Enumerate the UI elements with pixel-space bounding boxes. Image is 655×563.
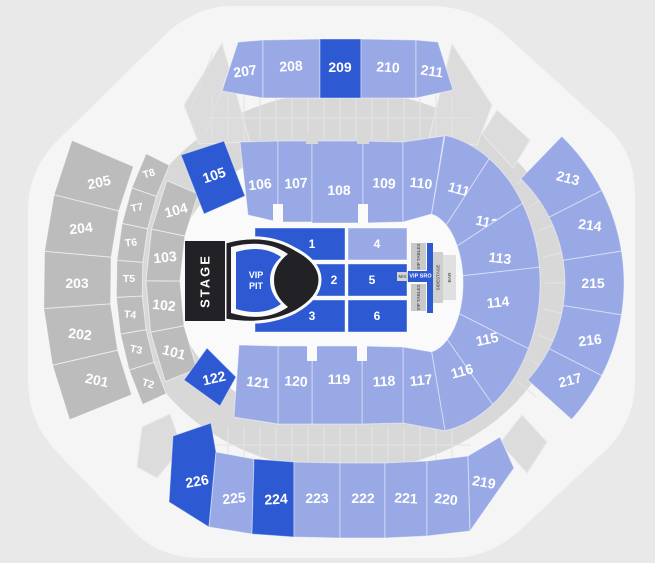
vip-tables-top-box[interactable] bbox=[411, 243, 426, 270]
section-225[interactable]: 225 bbox=[209, 452, 254, 534]
section-209[interactable]: 209 bbox=[320, 39, 361, 98]
floor-section-4[interactable]: 4 bbox=[348, 228, 407, 260]
section-210[interactable]: 210 bbox=[361, 39, 416, 98]
section-215-shape[interactable] bbox=[563, 251, 624, 315]
section-221[interactable]: 221 bbox=[385, 461, 427, 538]
section-223[interactable]: 223 bbox=[294, 462, 340, 538]
section-103-shape bbox=[146, 229, 185, 281]
section-t4-shape bbox=[116, 296, 146, 334]
section-119-shape[interactable] bbox=[312, 346, 362, 424]
section-224[interactable]: 224 bbox=[252, 459, 294, 537]
section-group-top-200: 207 208 209 210 211 bbox=[222, 39, 453, 98]
vip-tables-bottom[interactable]: VIP TABLES bbox=[411, 284, 426, 311]
aisle-notch bbox=[357, 345, 367, 361]
section-108[interactable]: 108 bbox=[312, 141, 363, 223]
section-119[interactable]: 119 bbox=[312, 346, 362, 424]
section-107-shape[interactable] bbox=[278, 141, 312, 222]
section-222[interactable]: 222 bbox=[340, 463, 385, 538]
aisle-notch bbox=[273, 204, 283, 223]
vip-tables-top[interactable]: VIP TABLES bbox=[411, 243, 426, 270]
section-t5-shape bbox=[116, 260, 143, 297]
section-208-shape[interactable] bbox=[263, 39, 320, 98]
section-t4: T4 bbox=[116, 296, 146, 334]
floor-section-6[interactable]: 6 bbox=[348, 300, 407, 332]
section-102-shape bbox=[146, 281, 184, 332]
aisle-notch bbox=[358, 204, 368, 223]
mix-box bbox=[397, 272, 408, 281]
section-223-shape[interactable] bbox=[294, 462, 340, 538]
section-209-shape[interactable] bbox=[320, 39, 361, 98]
section-208[interactable]: 208 bbox=[263, 39, 320, 98]
section-222-shape[interactable] bbox=[340, 463, 385, 538]
section-103: 103 bbox=[146, 229, 185, 281]
section-121[interactable]: 121 bbox=[234, 345, 278, 424]
section-221-shape[interactable] bbox=[385, 461, 427, 538]
section-210-shape[interactable] bbox=[361, 39, 416, 98]
section-107[interactable]: 107 bbox=[278, 141, 312, 222]
stage-group: VIP PIT STAGE bbox=[185, 238, 320, 322]
vomitory-notch bbox=[306, 133, 318, 144]
section-203-shape bbox=[44, 251, 112, 308]
vip-sro-box[interactable] bbox=[408, 271, 433, 282]
aisle-notch bbox=[307, 345, 317, 361]
section-118-shape[interactable] bbox=[362, 346, 403, 424]
vip-sro[interactable]: VIP SRO bbox=[408, 271, 433, 282]
section-121-shape[interactable] bbox=[234, 345, 278, 424]
bar-box bbox=[443, 255, 456, 300]
section-224-shape[interactable] bbox=[252, 459, 294, 537]
stage-shape bbox=[185, 241, 225, 321]
section-120[interactable]: 120 bbox=[278, 346, 312, 424]
section-108-shape[interactable] bbox=[312, 141, 363, 223]
section-220-shape[interactable] bbox=[427, 456, 470, 536]
vomitory-notch bbox=[357, 133, 369, 144]
section-118[interactable]: 118 bbox=[362, 346, 403, 424]
section-t6-shape bbox=[117, 223, 148, 262]
section-109[interactable]: 109 bbox=[363, 141, 403, 223]
floor-section-4-shape[interactable] bbox=[348, 228, 407, 260]
section-215[interactable]: 215 bbox=[563, 251, 624, 315]
section-203: 203 bbox=[44, 251, 112, 308]
vip-tables-bottom-box[interactable] bbox=[411, 284, 426, 311]
section-120-shape[interactable] bbox=[278, 346, 312, 424]
sidestage-box bbox=[433, 252, 443, 303]
section-109-shape[interactable] bbox=[363, 141, 403, 223]
section-225-shape[interactable] bbox=[209, 452, 254, 534]
section-t5: T5 bbox=[116, 260, 143, 297]
section-t6: T6 bbox=[117, 223, 148, 262]
seat-map: 207 208 209 210 211 201 202 2 bbox=[0, 0, 655, 563]
floor-section-6-shape[interactable] bbox=[348, 300, 407, 332]
section-102: 102 bbox=[146, 281, 184, 332]
section-220[interactable]: 220 bbox=[427, 456, 470, 536]
